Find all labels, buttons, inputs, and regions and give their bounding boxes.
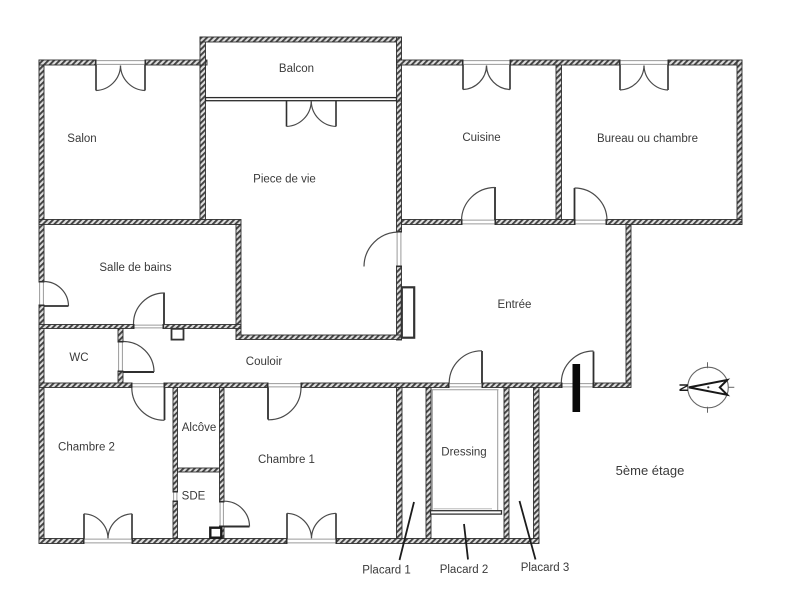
svg-text:Bureau ou chambre: Bureau ou chambre [597,133,698,145]
svg-text:Alcôve: Alcôve [182,422,217,434]
svg-text:Couloir: Couloir [246,356,283,368]
svg-text:SDE: SDE [182,491,206,503]
svg-text:Entrée: Entrée [498,299,532,311]
svg-text:Placard 2: Placard 2 [440,564,489,576]
svg-text:5ème étage: 5ème étage [616,463,685,478]
svg-text:Placard 1: Placard 1 [362,565,411,577]
svg-text:Salon: Salon [67,133,96,145]
svg-text:Salle de bains: Salle de bains [99,262,171,274]
svg-text:WC: WC [69,352,88,364]
svg-text:N: N [679,383,691,391]
svg-text:Balcon: Balcon [279,63,314,75]
svg-text:Dressing: Dressing [441,447,486,459]
svg-text:Piece de vie: Piece de vie [253,174,316,186]
svg-text:Cuisine: Cuisine [462,132,500,144]
svg-text:Chambre 1: Chambre 1 [258,454,315,466]
svg-text:Chambre 2: Chambre 2 [58,442,115,454]
svg-text:Placard 3: Placard 3 [521,562,570,574]
